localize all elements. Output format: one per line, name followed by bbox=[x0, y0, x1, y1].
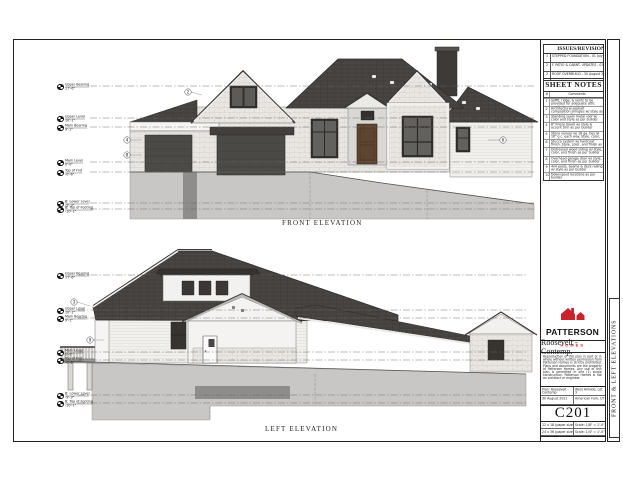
note-tag: 3 bbox=[73, 300, 76, 305]
datum-icon bbox=[57, 316, 64, 323]
datum-icon bbox=[57, 393, 64, 400]
left-elevation-drawing: 3 9 bbox=[60, 248, 540, 433]
level-marker-left-footing: B: Top of Footing-10'-1" bbox=[57, 400, 131, 418]
level-marker-left-top-of-fnd: Top of Fnd-0'-6" bbox=[57, 357, 106, 375]
front-window-bay bbox=[402, 116, 433, 157]
datum-icon bbox=[57, 308, 64, 315]
datum-icon bbox=[57, 170, 64, 177]
sheet-notes-header: SHEET NOTES bbox=[543, 78, 604, 92]
datum-icon bbox=[57, 84, 64, 91]
brand-name: PATTERSON bbox=[543, 327, 602, 337]
parapet-band bbox=[130, 122, 219, 131]
dormer-window bbox=[182, 281, 194, 295]
revision-row: 2F. PATIO & CABNT. UPDATES - 07 July 202… bbox=[544, 62, 603, 71]
sheet-page: 4 8 2 6 bbox=[0, 0, 623, 480]
project-info-table: Plan: Roosevelt - Contemp West Hillside,… bbox=[541, 386, 605, 405]
entry-transom-window bbox=[361, 111, 374, 120]
far-right-gable bbox=[465, 312, 537, 372]
front-house bbox=[130, 47, 538, 177]
sheet-border: 4 8 2 6 bbox=[13, 39, 606, 442]
note-row: 94x4 posts, beams & deck railing w/ styl… bbox=[544, 164, 603, 172]
sheet-side-label: FRONT & LEFT ELEVATIONS bbox=[609, 298, 620, 438]
level-marker-front-main-bearing: Main Bearing9'-1" bbox=[57, 124, 117, 142]
garage-door-1 bbox=[145, 135, 192, 172]
note-row: 3Standing seam metal roof w/ color and s… bbox=[544, 114, 603, 122]
window-well bbox=[195, 386, 290, 399]
sheet-number: C201 bbox=[541, 405, 605, 421]
datum-icon bbox=[57, 358, 64, 365]
datum-icon bbox=[57, 350, 64, 357]
level-marker-front-footing: B: Top of Footing-10'-1" bbox=[57, 206, 131, 224]
garage-header-band bbox=[210, 127, 294, 135]
far-right-window bbox=[488, 340, 504, 360]
patterson-house-icon bbox=[560, 306, 586, 321]
note-tag: 6 bbox=[502, 138, 505, 143]
note-tag: 2 bbox=[187, 90, 190, 95]
level-marker-left-main-bearing: Main Bearing9'-1" bbox=[57, 315, 117, 333]
garage-door-2 bbox=[217, 135, 285, 175]
datum-icon bbox=[57, 401, 64, 408]
datum-icon bbox=[57, 125, 64, 132]
plan-title: Roosevelt - Contemp. bbox=[541, 340, 605, 353]
front-window-left bbox=[311, 119, 338, 158]
left-foundation bbox=[92, 363, 526, 420]
datum-icon bbox=[57, 273, 64, 280]
left-right-roof bbox=[296, 305, 480, 344]
front-elevation-title: FRONT ELEVATION bbox=[282, 219, 363, 227]
scale-table: 12 x 18 (paper size) Scale: 1/8" = 1'-0"… bbox=[541, 421, 605, 437]
sheet-notes-table: # Comments 1Soffit, ridge, & vents to be… bbox=[543, 91, 604, 182]
note-row: 7Distressed wood siding w/ style, color,… bbox=[544, 147, 603, 155]
level-marker-left-upper-bearing: Upper Bearing17'-6" bbox=[57, 272, 122, 290]
right-edge-strip: FRONT & LEFT ELEVATIONS bbox=[607, 39, 620, 442]
datum-icon bbox=[57, 160, 64, 167]
disclaimer-text: Reproduction of this plan in part or in … bbox=[543, 355, 602, 385]
left-window bbox=[171, 322, 186, 349]
dormer-window bbox=[216, 281, 228, 295]
note-row: 1Soffit, ridge, & vents to be provided f… bbox=[544, 98, 603, 106]
paper-size-small: 12 x 18 (paper size) bbox=[541, 422, 574, 429]
title-block: ISSUES/REVISIONS 1STEPPED FOUNDATION - 0… bbox=[540, 40, 605, 441]
level-marker-front-top-of-fnd: Top of Fnd-0'-6" bbox=[57, 169, 106, 187]
front-window-right bbox=[456, 127, 470, 152]
note-row: 6Stucco system w/ hardcoat finish. Style… bbox=[544, 139, 603, 147]
note-tag: 9 bbox=[89, 338, 92, 343]
dormer-window bbox=[199, 281, 211, 295]
datum-icon bbox=[57, 116, 64, 123]
chimney-cap bbox=[435, 47, 459, 51]
info-lot: West Hillside, Lot 3 bbox=[574, 387, 605, 396]
note-row: 48" Frieze board w/ style & accent trim … bbox=[544, 122, 603, 130]
info-plan: Plan: Roosevelt - Contemp bbox=[541, 387, 574, 396]
left-house bbox=[93, 250, 537, 373]
note-row: 10Downspout locations as per builder bbox=[544, 172, 603, 180]
left-elevation-title: LEFT ELEVATION bbox=[265, 425, 338, 433]
level-marker-front-upper-bearing: Upper Bearing17'-6" bbox=[57, 83, 122, 101]
gable-window bbox=[230, 86, 257, 108]
note-row: 8Overhead garage door w/ style, color, a… bbox=[544, 156, 603, 164]
left-door bbox=[203, 336, 217, 363]
front-left-roof bbox=[130, 100, 197, 122]
front-elevation-drawing: 4 8 2 6 bbox=[72, 45, 538, 222]
note-row: 5Stone veneer w/ 18 ga. ties @ 16" o.c. … bbox=[544, 131, 603, 139]
note-tag: 4 bbox=[126, 138, 129, 143]
datum-icon bbox=[57, 207, 64, 214]
note-row: 2Architectural asphalt composition shing… bbox=[544, 106, 603, 114]
entry-door bbox=[357, 124, 377, 164]
scale-large: Scale: 1/4" = 1'-0" bbox=[574, 429, 605, 436]
note-tag: 8 bbox=[126, 153, 129, 158]
scale-small: Scale: 1/8" = 1'-0" bbox=[574, 422, 605, 429]
paper-size-large: 24 x 36 (paper size) bbox=[541, 429, 574, 436]
revision-row: 1STEPPED FOUNDATION - 01 July 2021 bbox=[544, 54, 603, 62]
